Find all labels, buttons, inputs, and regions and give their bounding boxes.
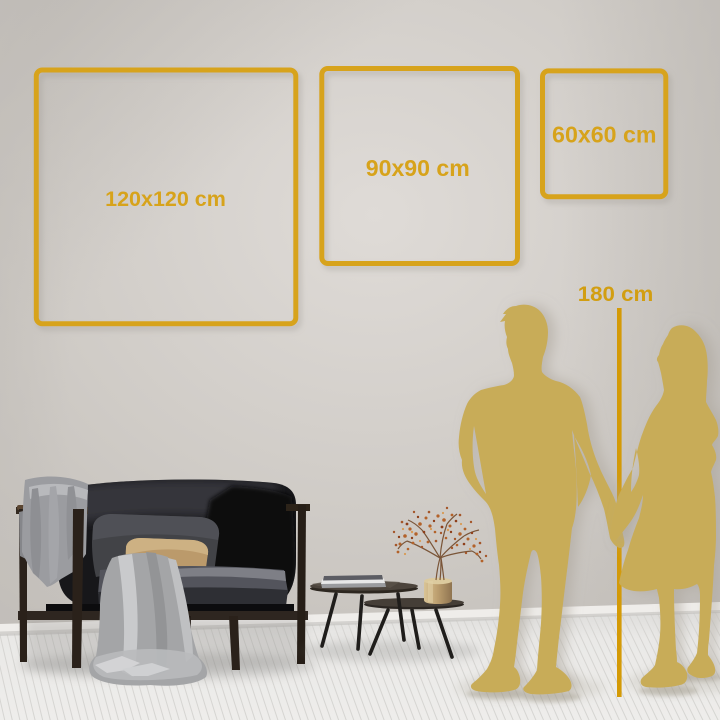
svg-text:60x60 cm: 60x60 cm: [552, 121, 657, 147]
svg-text:90x90 cm: 90x90 cm: [366, 155, 470, 181]
svg-text:120x120 cm: 120x120 cm: [105, 187, 226, 211]
svg-text:180 cm: 180 cm: [578, 281, 654, 306]
